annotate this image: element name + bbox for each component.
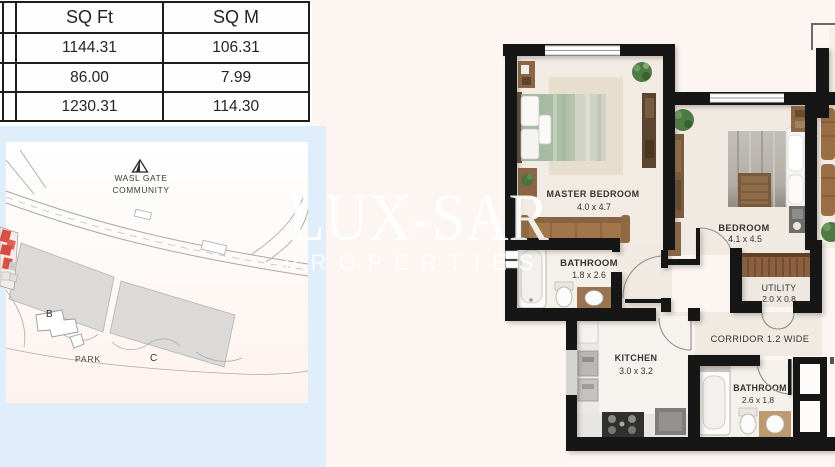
svg-text:MASTER BEDROOM: MASTER BEDROOM <box>546 189 639 199</box>
svg-text:BEDROOM: BEDROOM <box>718 223 769 233</box>
svg-text:KITCHEN: KITCHEN <box>615 353 658 363</box>
svg-text:UTILITY: UTILITY <box>762 283 797 293</box>
svg-text:3.0 x 3.2: 3.0 x 3.2 <box>619 366 653 376</box>
svg-text:BATHROOM: BATHROOM <box>560 258 618 269</box>
svg-text:4.0 x 4.7: 4.0 x 4.7 <box>577 202 611 212</box>
svg-text:4.1 x 4.5: 4.1 x 4.5 <box>728 234 762 244</box>
svg-text:CORRIDOR 1.2 WIDE: CORRIDOR 1.2 WIDE <box>711 334 810 344</box>
svg-text:2.6 x 1.8: 2.6 x 1.8 <box>742 395 774 405</box>
svg-text:2.0 X 0.8: 2.0 X 0.8 <box>762 294 796 304</box>
svg-text:1.8 x 2.6: 1.8 x 2.6 <box>572 270 606 280</box>
